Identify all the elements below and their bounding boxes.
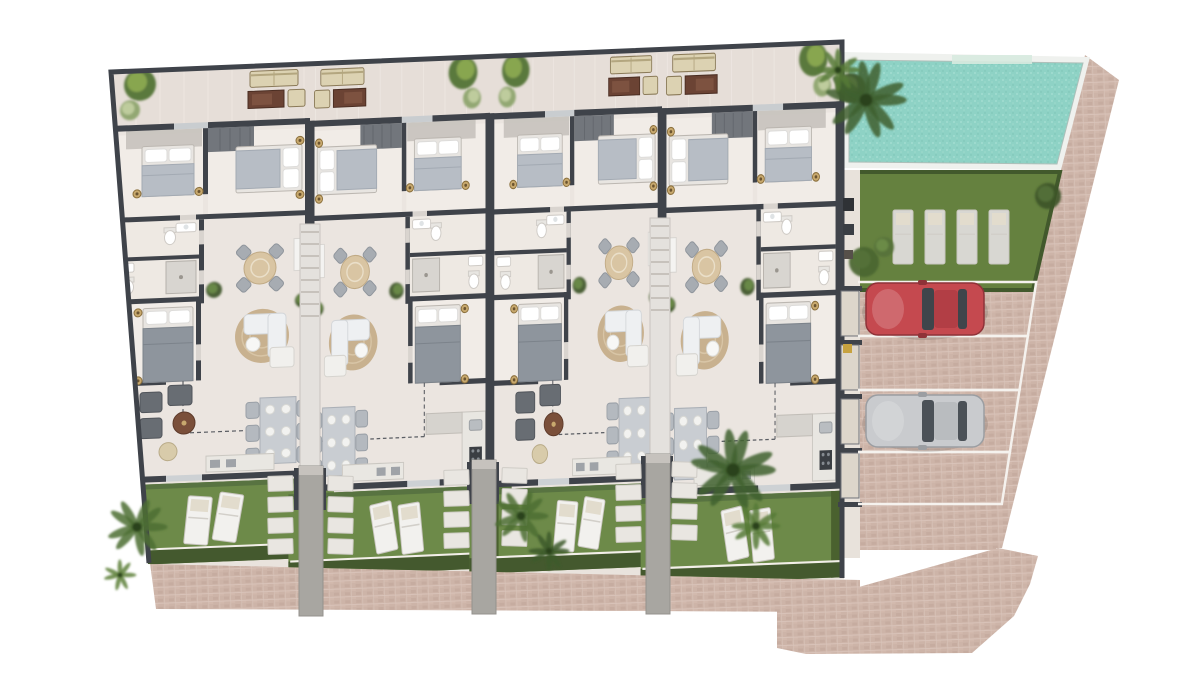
wall [564, 359, 568, 380]
duvet [415, 325, 460, 383]
kitchen-counter-leg [426, 412, 462, 434]
ellipse [165, 230, 176, 244]
door [413, 211, 427, 217]
lounge-chair [516, 392, 535, 414]
lounge-chair [140, 418, 162, 439]
appliance [590, 462, 599, 471]
circle [342, 415, 350, 425]
rect [268, 497, 294, 513]
sink [819, 251, 833, 261]
kitchen-sink [820, 422, 832, 433]
circle [132, 522, 142, 532]
wall [759, 293, 763, 345]
coffee-table [246, 337, 260, 352]
pillow [520, 137, 539, 151]
duvet [142, 164, 194, 197]
wall [570, 116, 574, 185]
door [564, 342, 568, 359]
ellipse [782, 219, 792, 235]
wall [196, 360, 201, 380]
dining-table-round [244, 251, 276, 284]
circle [726, 463, 739, 476]
outdoor-table-top [344, 92, 362, 104]
rect [328, 539, 354, 555]
walkway-mat [472, 460, 496, 469]
wall [564, 292, 568, 342]
door [567, 223, 571, 238]
nightstand [667, 127, 674, 136]
garden-walkway [299, 466, 323, 616]
rect [401, 505, 418, 520]
pillow [169, 310, 190, 324]
rect [918, 445, 927, 450]
wall [196, 296, 201, 344]
rect [918, 392, 927, 397]
door [196, 344, 201, 360]
wall-outer [836, 101, 840, 484]
nightstand [133, 190, 141, 198]
nightstand [812, 375, 819, 384]
pillow [169, 148, 191, 162]
walkway-wall [294, 468, 299, 510]
utility-box [843, 198, 854, 211]
circle [266, 405, 275, 414]
nightstand [315, 139, 322, 148]
rect [268, 476, 294, 492]
nightstand [650, 125, 657, 134]
rect [444, 512, 470, 528]
pillow [769, 306, 788, 321]
toilet [536, 220, 546, 238]
ellipse [819, 269, 829, 285]
rect [268, 539, 294, 555]
duvet [689, 138, 728, 181]
duvet [236, 149, 280, 189]
nightstand [461, 304, 468, 313]
rect [934, 402, 958, 440]
nightstand [296, 136, 304, 144]
rect [268, 518, 294, 534]
kitchen-hob [820, 450, 832, 470]
lawn-shrub [874, 237, 894, 257]
dining-table-round [692, 249, 720, 285]
outdoor-chair [288, 89, 305, 107]
rect [992, 213, 1006, 225]
toilet [781, 216, 792, 235]
pillow [768, 130, 788, 145]
circle [637, 428, 645, 438]
rect [958, 401, 967, 441]
kitchen-sink [469, 420, 482, 431]
rect [328, 518, 354, 534]
porch-separator [838, 394, 862, 399]
pillow [418, 309, 437, 323]
car-silver [862, 392, 988, 452]
pool-lounger [925, 210, 945, 264]
rect [607, 403, 618, 420]
rect [246, 402, 259, 419]
wall-outer [486, 113, 491, 480]
pool-lounger [957, 210, 977, 264]
ellipse [431, 226, 441, 241]
door [405, 228, 410, 243]
rect [672, 504, 698, 520]
rect [650, 218, 670, 462]
rect [896, 213, 910, 225]
rect [928, 213, 942, 225]
pillow [283, 168, 299, 188]
nightstand [195, 187, 203, 195]
rect [616, 464, 642, 480]
lounge-chair [540, 384, 561, 406]
walkway-mat [299, 466, 323, 475]
rect [918, 280, 927, 285]
circle [679, 440, 687, 450]
nightstand [511, 376, 518, 385]
terrace-door [545, 110, 574, 117]
rect [444, 533, 470, 549]
rect [616, 506, 642, 522]
pouf [159, 442, 177, 461]
nightstand [812, 172, 819, 181]
door [756, 221, 760, 236]
site-plan [0, 0, 1200, 685]
daybed [628, 345, 649, 367]
pillow [639, 137, 653, 157]
rect [616, 527, 642, 543]
patio-door [538, 478, 569, 486]
pillow [541, 137, 560, 151]
rect [246, 425, 259, 442]
appliance [210, 460, 220, 468]
ellipse [469, 274, 479, 289]
circle [282, 404, 291, 413]
duvet [143, 327, 193, 383]
circle [517, 512, 526, 521]
duvet [518, 324, 561, 382]
car-red [862, 280, 988, 340]
dining-table-round [605, 245, 633, 280]
pillow [789, 305, 808, 320]
sink [468, 256, 482, 266]
kitchen-counter-leg [777, 414, 813, 437]
door [567, 265, 571, 280]
pool-lawn [845, 172, 1060, 290]
appliance [226, 459, 236, 467]
rect [934, 290, 958, 328]
garden-lounger [398, 502, 424, 555]
circle [1038, 186, 1054, 202]
circle [342, 437, 350, 447]
nightstand [315, 195, 322, 204]
rect [672, 483, 698, 499]
circle [282, 426, 291, 435]
toilet [500, 271, 510, 289]
duvet [518, 153, 563, 187]
lawn-shrub [849, 247, 879, 277]
daybed [676, 354, 697, 376]
circle [624, 406, 632, 416]
lawn-shrub [1035, 183, 1061, 209]
circle [117, 572, 122, 577]
shared-staircase [300, 224, 320, 468]
garden-hedge-outer [108, 486, 120, 566]
circle [876, 239, 888, 251]
coffee-table [707, 341, 719, 357]
circle [637, 405, 645, 415]
circle [328, 438, 336, 448]
rect [922, 400, 934, 442]
coffee-table [355, 343, 368, 358]
door [408, 346, 413, 363]
rect [707, 411, 719, 429]
pool-lounger [893, 210, 913, 264]
rect [672, 525, 698, 541]
appliance [576, 463, 585, 472]
coffee-table [607, 335, 619, 350]
pouf [532, 444, 547, 463]
pillow [639, 159, 653, 179]
daybed [270, 347, 294, 368]
wall [408, 296, 413, 346]
pillow [439, 308, 458, 322]
utility-box [843, 224, 854, 235]
door [199, 230, 204, 244]
nightstand [461, 375, 468, 384]
pillow [672, 161, 686, 182]
rect [190, 499, 209, 512]
rect [918, 333, 927, 338]
appliance [391, 467, 400, 476]
palm-tree [104, 559, 137, 590]
outdoor-table-top [252, 94, 272, 106]
duvet [414, 157, 461, 191]
utility-box [844, 250, 853, 259]
nightstand [511, 305, 518, 314]
pillow [439, 140, 459, 154]
door [180, 215, 196, 221]
toilet [164, 227, 176, 244]
rect [585, 500, 602, 515]
ellipse [501, 274, 510, 289]
circle [546, 548, 552, 554]
rect [328, 476, 354, 492]
rect [616, 485, 642, 501]
floor-plan-canvas [0, 0, 1200, 685]
wall [408, 363, 413, 384]
porch-separator [838, 286, 862, 291]
door [763, 203, 777, 209]
rect [356, 434, 368, 451]
lounge-chair [516, 419, 535, 441]
pool-lounger [989, 210, 1009, 264]
door [550, 206, 564, 212]
duvet [765, 147, 811, 182]
circle [328, 461, 336, 471]
toilet [468, 271, 479, 289]
rect [960, 213, 974, 225]
nightstand [650, 182, 657, 191]
outdoor-chair [315, 90, 330, 108]
ellipse [872, 401, 904, 441]
shared-staircase [650, 218, 670, 462]
rect [607, 427, 618, 444]
wall-outer [490, 113, 494, 483]
duvet [598, 139, 636, 180]
walkway-wall [641, 456, 646, 498]
pillow [145, 149, 167, 163]
wall-outer [110, 126, 115, 480]
outdoor-table-top [612, 81, 629, 93]
rect [328, 497, 354, 513]
nightstand [563, 178, 570, 187]
nightstand [812, 301, 819, 310]
pillow [521, 307, 539, 321]
rect [300, 224, 320, 468]
circle [834, 66, 841, 73]
ellipse [872, 289, 904, 329]
circle [852, 250, 871, 269]
nightstand [462, 181, 469, 190]
toilet [431, 223, 442, 241]
pool-steps [952, 55, 1032, 64]
circle [266, 427, 275, 436]
nightstand [510, 180, 517, 189]
duvet [337, 149, 377, 190]
appliance [377, 467, 386, 476]
lounge-chair [140, 392, 162, 413]
wall [402, 123, 407, 192]
wall [753, 111, 757, 183]
rect [444, 470, 470, 486]
porch-pad [841, 399, 859, 444]
nightstand [757, 175, 764, 184]
door [759, 344, 763, 361]
circle [679, 416, 687, 426]
pillow [541, 306, 559, 320]
ellipse [537, 223, 546, 238]
pillow [417, 141, 437, 155]
outdoor-chair [643, 76, 658, 94]
nightstand [667, 186, 674, 195]
rect [922, 288, 934, 330]
door [405, 270, 410, 285]
utility-box [843, 344, 852, 353]
daybed [324, 355, 346, 377]
rect [356, 410, 368, 427]
nightstand [406, 183, 413, 192]
rect [502, 468, 528, 484]
rect [958, 289, 967, 329]
dining-table-round [341, 255, 370, 289]
rect [221, 495, 241, 509]
lounge-chair [168, 385, 192, 406]
patio-door [758, 484, 790, 492]
pillow [320, 171, 334, 191]
pillow [283, 147, 299, 167]
door [199, 270, 204, 284]
garden-walkway [472, 460, 496, 614]
wall [203, 128, 208, 194]
pillow [320, 150, 334, 170]
garden-walkway [646, 454, 670, 614]
porch-pad [841, 291, 859, 336]
duvet [766, 323, 811, 383]
circle [328, 415, 336, 425]
circle [282, 448, 291, 457]
rect [559, 504, 575, 518]
circle [752, 522, 760, 530]
toilet [819, 266, 830, 285]
circle [624, 429, 632, 439]
nightstand [296, 190, 304, 198]
pillow [146, 311, 167, 325]
walkway-mat [646, 454, 670, 463]
rect [444, 491, 470, 507]
outdoor-chair [666, 76, 681, 95]
pillow [672, 139, 686, 160]
sink [497, 257, 511, 267]
garden-lounger [184, 496, 213, 545]
terrace-door [753, 104, 783, 112]
circle [860, 94, 873, 107]
nightstand [134, 309, 142, 317]
circle [694, 416, 702, 426]
wall [759, 362, 763, 384]
outdoor-table-top [696, 78, 714, 91]
door [756, 265, 760, 280]
porch-pad [841, 453, 859, 498]
pillow [789, 130, 809, 145]
